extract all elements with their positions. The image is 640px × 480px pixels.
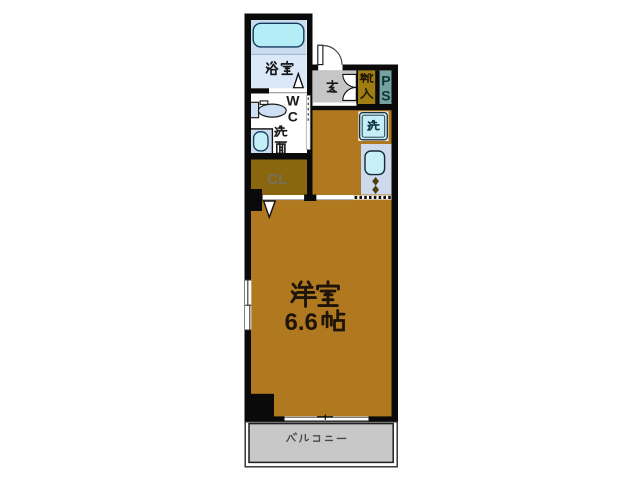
svg-text:P: P (381, 73, 390, 89)
svg-text:W: W (286, 93, 300, 109)
svg-text:CL: CL (267, 171, 288, 188)
svg-text:C: C (288, 109, 298, 125)
svg-text:6.6: 6.6 (285, 309, 318, 336)
svg-text:S: S (381, 88, 390, 104)
